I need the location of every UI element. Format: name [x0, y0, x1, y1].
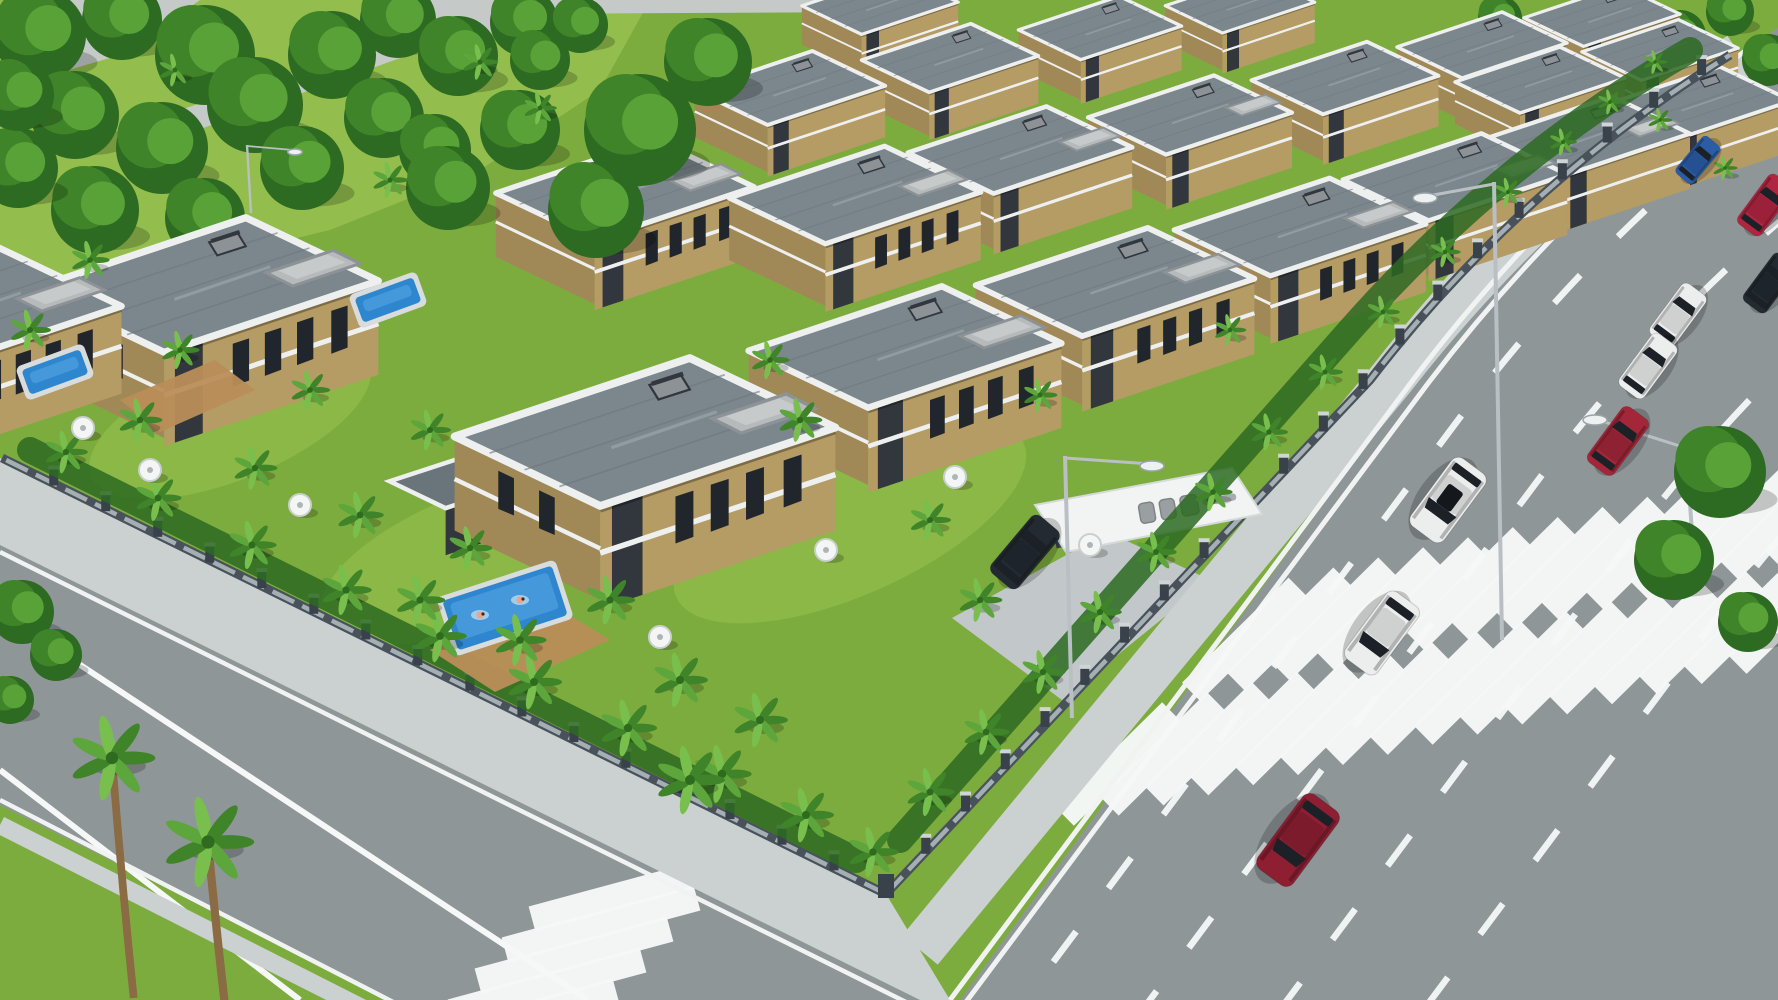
villa-window — [988, 376, 1003, 420]
fence-pillar — [1558, 162, 1567, 179]
tree — [1718, 592, 1778, 652]
villa-window — [922, 218, 934, 253]
villa-window — [711, 479, 729, 532]
fence-pillar — [1120, 626, 1129, 643]
fence-pillar — [1001, 752, 1010, 769]
villa-window — [898, 226, 910, 261]
fence-pillar — [1359, 372, 1368, 389]
villa-window — [498, 471, 514, 516]
villa-window — [0, 360, 1, 405]
villa-window — [1343, 258, 1355, 293]
villa-window — [930, 395, 945, 439]
villa-window — [1367, 250, 1379, 285]
swimmer — [511, 595, 529, 605]
villa-window — [670, 222, 682, 258]
fence-pillar — [1279, 457, 1288, 474]
villa-window — [784, 455, 802, 508]
fence-pillar — [1603, 126, 1612, 143]
architectural-rendering — [0, 0, 1778, 1000]
fence-pillar — [1200, 541, 1209, 558]
fence-pillar — [961, 795, 970, 812]
villa-window — [331, 306, 347, 354]
fence-pillar — [1160, 583, 1169, 600]
fence-pillar — [1697, 58, 1706, 75]
villa-window — [1189, 308, 1202, 347]
villa-window — [947, 210, 959, 245]
villa-window — [1163, 316, 1176, 355]
villa-window — [297, 317, 313, 365]
fence-pillar — [1649, 91, 1658, 108]
villa-window — [265, 328, 281, 376]
fence-pillar — [1080, 668, 1089, 685]
swimmer — [471, 610, 489, 620]
villa-window — [675, 491, 693, 544]
fence-pillar — [1433, 284, 1442, 301]
fence-pillar — [1515, 201, 1524, 218]
fence-corner-pillar — [878, 874, 894, 898]
fence-pillar — [1319, 415, 1328, 432]
villa-window — [1320, 266, 1332, 301]
villa-window — [746, 467, 764, 520]
villa-community-scene — [0, 0, 1778, 1000]
villa-window — [694, 214, 706, 250]
villa-window — [959, 385, 974, 429]
fence-pillar — [921, 837, 930, 854]
fence-pillar — [1395, 327, 1404, 344]
fence-pillar — [1041, 710, 1050, 727]
villa-window — [1137, 325, 1150, 364]
villa-window — [539, 490, 555, 535]
fence-pillar — [1473, 241, 1482, 258]
villa-window — [875, 234, 887, 269]
